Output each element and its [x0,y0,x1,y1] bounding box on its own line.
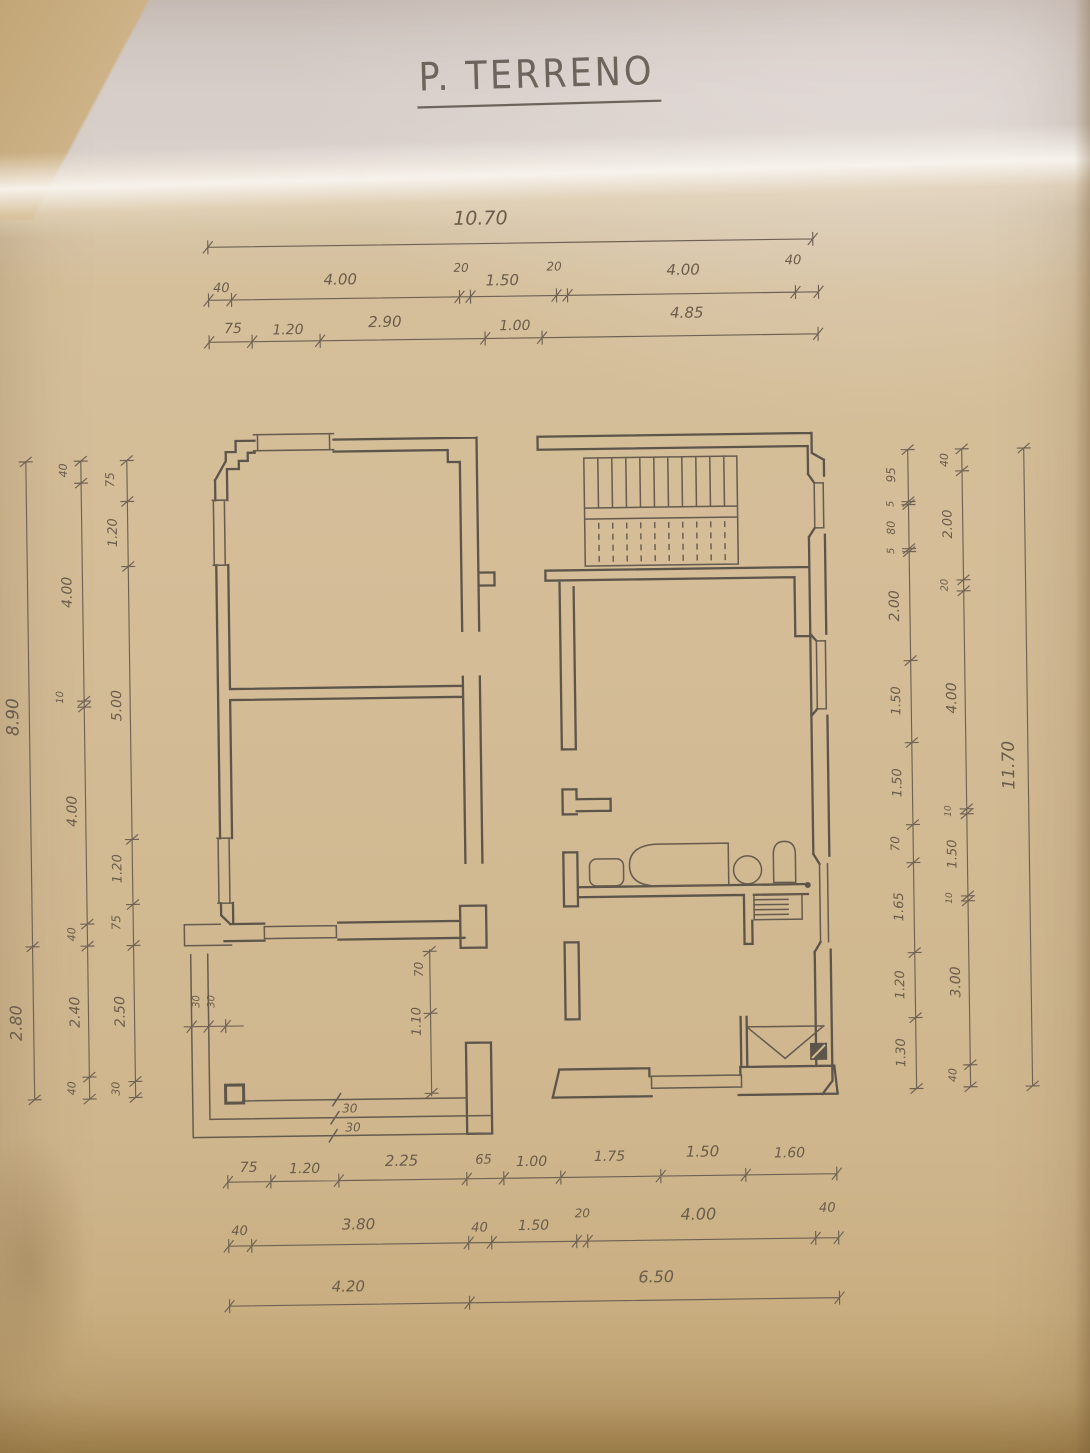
dim-label: 40 [65,1081,78,1095]
door-handle-dot [805,882,811,888]
dim-label: 5 [885,501,896,508]
dim-label: 1.50 [518,1218,549,1234]
dim-label: 10 [55,691,66,704]
dim-label: 95 [884,467,898,482]
dim-label: 2.90 [368,313,402,331]
staircase-upper-flight [584,456,738,566]
dim-label: 8.90 [3,698,24,736]
dim-label: 80 [885,521,898,535]
dim-label: 65 [475,1152,492,1167]
walls-right-block [457,433,838,1134]
dim-label: 1.20 [272,322,303,338]
dim-label: 4.00 [680,1204,716,1223]
dim-label: 20 [575,1206,591,1220]
dim-label: 1.65 [892,892,907,921]
dim-label: 40 [231,1224,248,1239]
dim-label: 10 [944,805,954,817]
dim-label: 40 [213,281,230,296]
dim-label: 40 [938,453,951,467]
dim-label: 3.80 [342,1215,376,1233]
dim-label: 1.50 [889,686,904,715]
dim-label: 75 [109,915,123,930]
dim-label: 3.00 [948,966,964,997]
dim-label: 40 [65,927,78,941]
dim-label: 5.00 [109,690,125,721]
dim-line-terrace-left-steps [184,1019,244,1034]
dim-label: 70 [888,836,902,852]
dim-label: 20 [453,261,469,275]
dim-lines [16,229,1043,1316]
dim-label: 75 [240,1160,258,1176]
dim-label: 2.50 [112,996,128,1027]
water-heater [754,894,802,920]
toilet-fixture [773,841,796,882]
dim-line-bottom-row-3 [224,1291,844,1314]
dim-label: 1.50 [890,768,905,797]
bidet-fixture [589,859,623,886]
dim-label: 40 [57,463,70,477]
dim-label: 4.00 [666,260,700,278]
dim-line-bottom-row-2 [224,1231,844,1254]
dim-label: 20 [546,259,562,273]
dim-label: 75 [224,321,242,337]
dim-label: 1.00 [516,1154,547,1170]
dim-label: 2.40 [67,996,83,1027]
dim-label: 30 [342,1101,358,1115]
dim-label: 1.75 [594,1149,625,1165]
dim-label: 1.20 [289,1161,320,1177]
walls-left-block [215,437,500,951]
dim-label: 2.25 [385,1152,419,1170]
dim-label: 1.20 [110,854,125,883]
dim-label: 20 [940,579,951,592]
water-heater-hatching [754,899,788,914]
dim-label: 30 [345,1120,361,1134]
dim-label: 4.85 [670,303,704,321]
dim-label: 30 [109,1082,122,1096]
dim-label: 1.20 [106,518,121,547]
dim-label: 1.20 [893,970,908,999]
dim-labels: 10.70404.00201.50204.0040751.202.901.004… [0,200,1026,1300]
dim-label: 4.00 [944,682,960,713]
dim-label: 40 [819,1201,836,1216]
dim-label: 4.00 [323,270,357,288]
dim-label: 75 [103,472,117,487]
dim-label: 4.00 [64,796,80,827]
dim-line-top-overall [203,232,818,255]
dim-label: 10.70 [453,207,508,230]
scanned-floor-plan-photo: P. TERRENO 10.704 [0,0,1090,1453]
dim-label: 6.50 [638,1267,674,1286]
dim-label: 4.20 [332,1277,366,1295]
staircase-lower-flight-dashed [599,521,726,564]
washbasin-fixture [733,856,761,884]
dim-label: 4.00 [59,577,75,608]
dim-label: 1.50 [485,271,519,289]
dim-label: 40 [471,1221,488,1236]
dim-label: 1.30 [894,1038,909,1067]
dim-label: 2.80 [6,1005,25,1041]
dim-label: 40 [785,253,802,268]
dim-label: 2.00 [887,590,903,621]
dim-label: 1.00 [499,318,530,334]
dim-label: 1.50 [686,1142,720,1160]
dim-label: 30 [206,995,217,1008]
dim-label: 11.70 [999,741,1020,790]
terrace-pillar [226,1085,244,1103]
dim-label: 70 [412,961,426,977]
dim-label: 5 [886,548,897,555]
dim-label: 2.00 [941,509,956,538]
dim-label: 30 [191,995,202,1008]
bathtub-fixture [629,843,729,886]
windows-and-details [177,427,832,1144]
dim-label: 1.10 [409,1007,424,1036]
dim-label: 1.60 [774,1145,805,1161]
floor-plan-svg: 10.70404.00201.50204.0040751.202.901.004… [0,0,1090,1453]
dim-label: 1.50 [945,839,960,868]
dim-label: 40 [946,1068,959,1082]
dim-label: 10 [945,892,955,904]
dim-line-right-overall [1017,443,1040,1091]
